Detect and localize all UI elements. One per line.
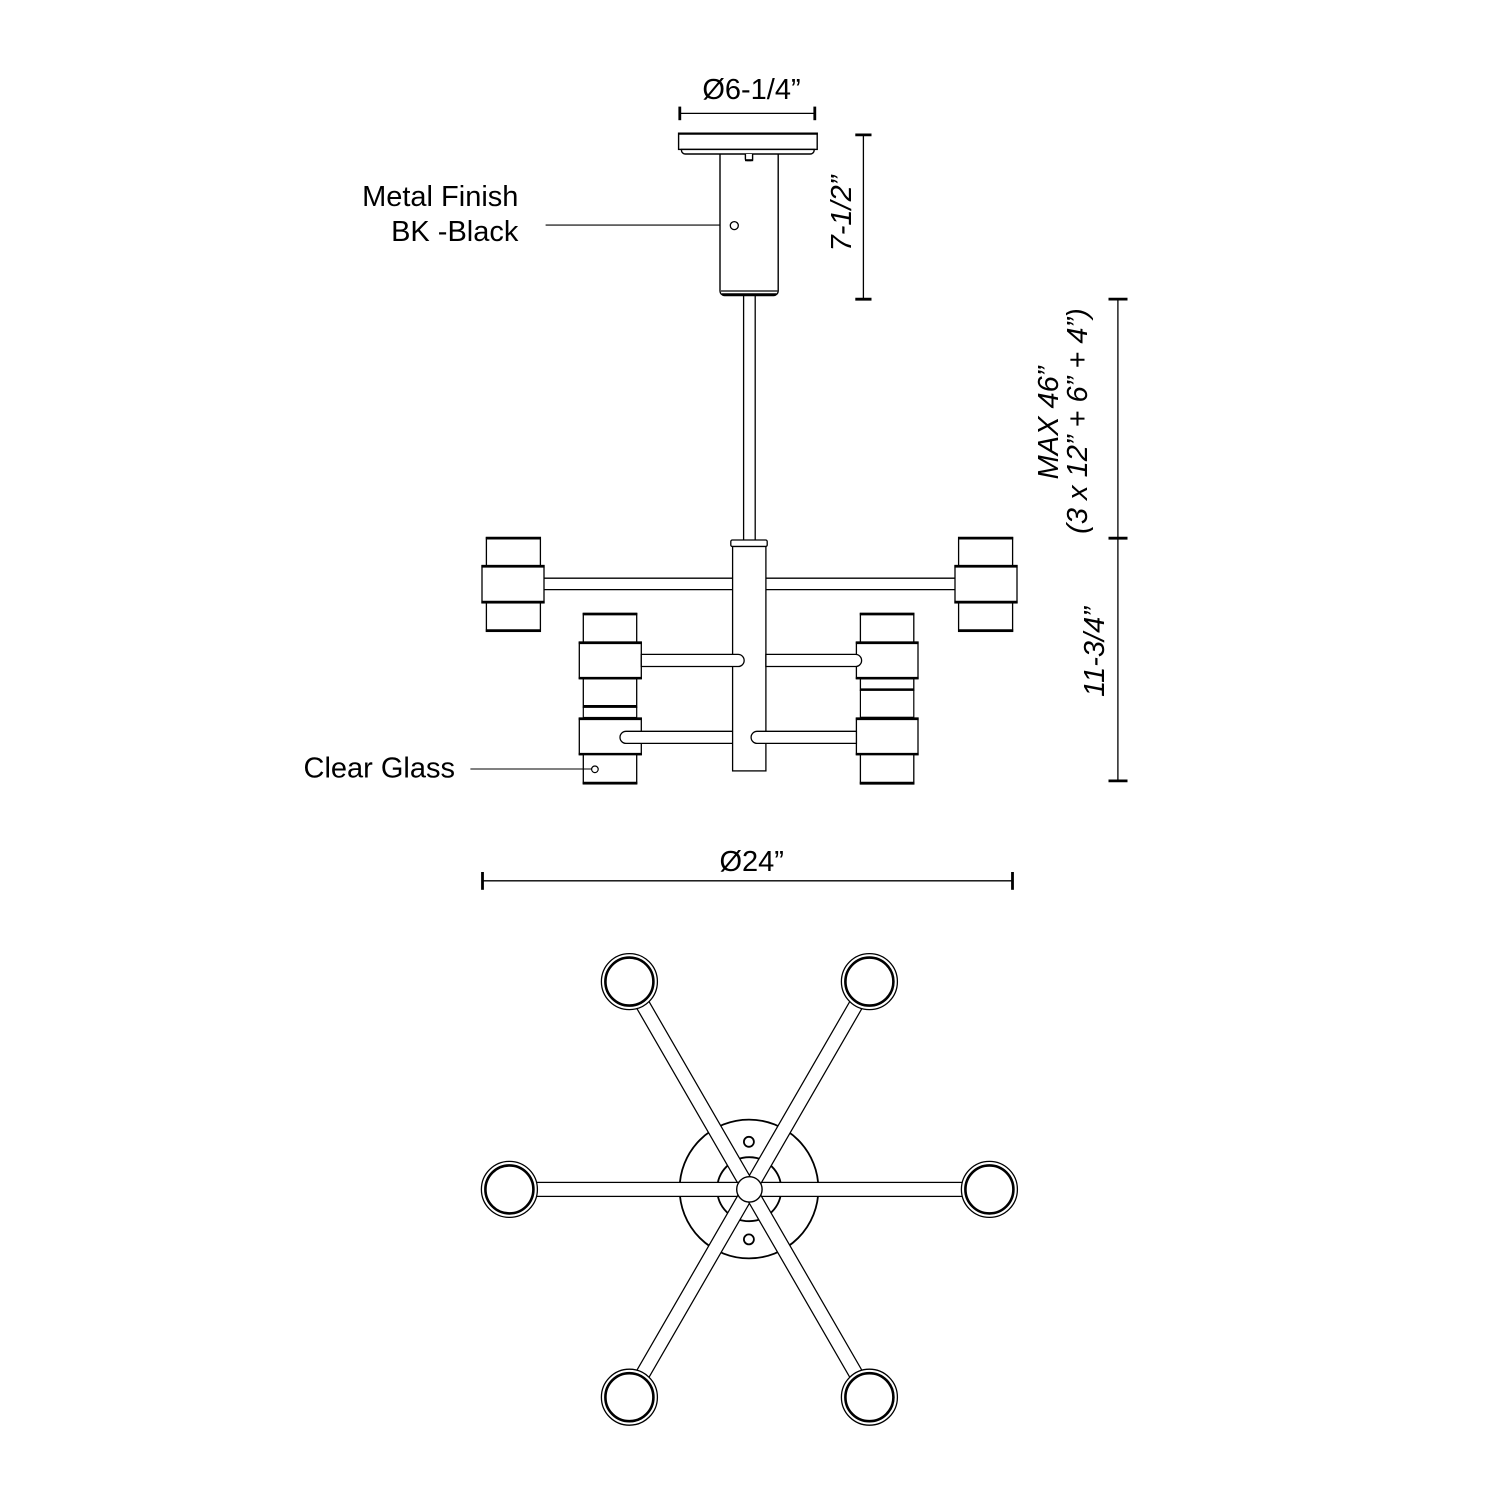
svg-text:MAX 46”: MAX 46”: [1033, 365, 1065, 479]
svg-text:Ø24”: Ø24”: [719, 846, 783, 878]
svg-text:7-1/2”: 7-1/2”: [826, 174, 858, 251]
svg-text:Clear Glass: Clear Glass: [304, 752, 456, 784]
svg-text:Metal Finish: Metal Finish: [362, 181, 518, 213]
svg-text:11-3/4”: 11-3/4”: [1079, 606, 1111, 697]
svg-text:Ø6-1/4”: Ø6-1/4”: [702, 74, 800, 106]
svg-text:(3 x 12” + 6” + 4”): (3 x 12” + 6” + 4”): [1062, 308, 1094, 534]
svg-text:BK -Black: BK -Black: [391, 216, 519, 248]
